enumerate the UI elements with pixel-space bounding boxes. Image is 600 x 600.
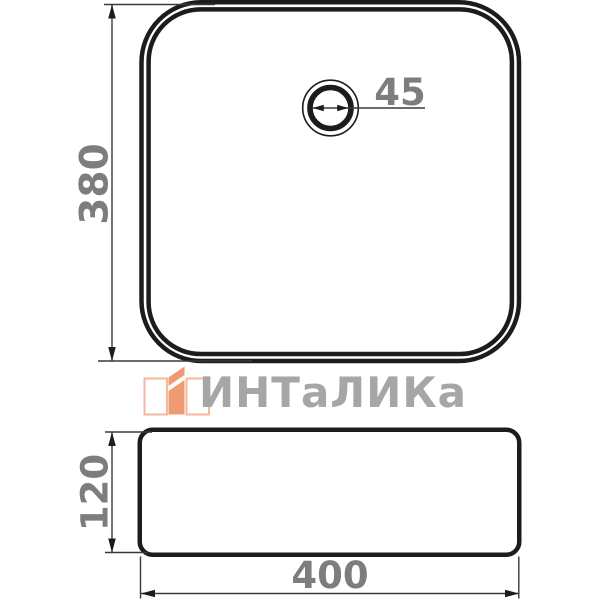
arrow-right-icon bbox=[337, 105, 348, 111]
arrow-down-icon bbox=[108, 539, 116, 553]
side-view-outline bbox=[140, 430, 520, 555]
arrow-left-icon bbox=[141, 590, 155, 598]
dim-label-45: 45 bbox=[374, 71, 426, 114]
dim-label-400: 400 bbox=[291, 554, 368, 597]
dimension-380: 380 bbox=[73, 5, 253, 362]
top-view-inner-basin bbox=[149, 9, 512, 354]
dim-label-120: 120 bbox=[74, 454, 117, 531]
watermark-brand-text: ИНТаЛИКа bbox=[199, 368, 467, 417]
top-view-outer-rim bbox=[142, 2, 520, 361]
arrow-left-icon bbox=[313, 105, 324, 111]
sink-technical-drawing: 380 45 ИНТаЛИКа bbox=[0, 0, 600, 600]
dim-label-380: 380 bbox=[73, 143, 118, 224]
dimension-45: 45 bbox=[313, 71, 426, 114]
side-view bbox=[140, 430, 520, 555]
arrow-up-icon bbox=[108, 5, 116, 19]
arrow-down-icon bbox=[108, 347, 116, 361]
arrow-up-icon bbox=[108, 432, 116, 446]
top-view bbox=[142, 2, 520, 361]
arrow-right-icon bbox=[505, 590, 519, 598]
dimension-400: 400 bbox=[141, 554, 520, 599]
watermark: ИНТаЛИКа bbox=[145, 367, 468, 418]
